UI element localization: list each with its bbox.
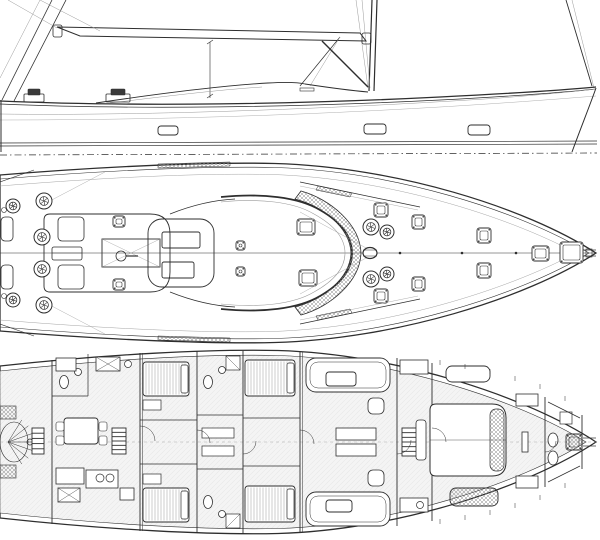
guest-pillow-b-port [287, 363, 294, 393]
mast-winch-4 [380, 267, 394, 281]
skylight-stbd-dog-0 [300, 271, 302, 273]
deck-edge [0, 89, 596, 107]
dinette-chair-4 [99, 436, 107, 445]
fore-hatch-2s-dog-1 [488, 264, 490, 266]
pantry-counter-top [400, 360, 428, 374]
fore-hatch-1s [412, 277, 425, 291]
roof-vent-port-dog-1 [242, 242, 244, 244]
skylight-stbd-dog-1 [314, 271, 316, 273]
deck-locker-port-dog-3 [122, 224, 124, 226]
traveler-fitting [300, 88, 314, 91]
winch-aft-3 [6, 293, 20, 307]
lazarette-ladder-frame [32, 428, 44, 454]
wardrobe-a-stbd [143, 474, 161, 484]
mast-hatch-stbd-dog-2 [375, 300, 377, 302]
fore-hatch-1p-dog-3 [422, 226, 424, 228]
winch-primary-stbd [34, 261, 50, 277]
skylight-stbd-dog-3 [314, 283, 316, 285]
deck-locker-stbd [113, 279, 125, 290]
companionway-steps [112, 428, 126, 454]
deck-locker-stbd-dog-0 [114, 280, 116, 282]
owner-chaise-stbd [450, 488, 498, 506]
owner-tv-cabinet [522, 432, 528, 452]
mast-hatch-port-dog-1 [385, 204, 387, 206]
mast-hatch-port-dog-3 [385, 214, 387, 216]
windlass-unit-dog-3 [579, 447, 581, 449]
windlass-unit-dog-2 [567, 447, 569, 449]
waterline [0, 153, 597, 155]
mast-hatch-port-dog-0 [375, 204, 377, 206]
saloon-armchair-stbd [368, 470, 384, 486]
deck-dot-3 [515, 252, 518, 255]
windlass-hatch-dog-3 [580, 260, 582, 262]
boot-top-upper [0, 141, 597, 143]
dinette-chair-3 [99, 422, 107, 431]
fore-hatch-3-dog-2 [533, 258, 535, 260]
roof-vent-port-dog-2 [237, 247, 239, 249]
windlass-unit-frame [566, 434, 582, 450]
mast-hatch-port-dog-2 [375, 214, 377, 216]
head-sink-stbd [219, 511, 226, 518]
owner-dresser-stbd [516, 476, 538, 488]
ga-drawing-svg [0, 0, 600, 540]
fore-hatch-2p-dog-0 [478, 229, 480, 231]
boom-vang [322, 41, 368, 87]
fore-hatch-3-dog-1 [546, 247, 548, 249]
fore-hatch-1p-dog-2 [413, 226, 415, 228]
hull-window-1 [158, 126, 178, 135]
roof-vent-stbd-dog-1 [242, 268, 244, 270]
head-sink-port [219, 367, 226, 374]
deck-locker-port-dog-0 [114, 217, 116, 219]
deck-locker-port-dog-2 [114, 224, 116, 226]
crew-berth-stbd [548, 466, 580, 482]
mast-back [374, 0, 377, 91]
deck-locker-port-dog-1 [122, 217, 124, 219]
guest-pillow-a-stbd [181, 491, 188, 519]
winch-aft-4 [36, 297, 52, 313]
dinette-chair-2 [56, 436, 64, 445]
fwd-shower [560, 412, 572, 424]
mast-hatch-stbd-dog-0 [375, 290, 377, 292]
saloon-table-stbd [326, 500, 352, 512]
deck-locker-stbd-dog-1 [122, 280, 124, 282]
skylight-stbd-dog-2 [300, 283, 302, 285]
windlass-hatch-dog-0 [561, 243, 563, 245]
windlass-unit-dog-1 [579, 435, 581, 437]
deck-plan-view [0, 162, 596, 343]
guest-pillow-b-stbd [287, 489, 294, 519]
owner-headboard [490, 409, 504, 471]
interior-plan-view [0, 350, 596, 534]
windlass-hatch-dog-1 [580, 243, 582, 245]
fore-hatch-2p-dog-2 [478, 240, 480, 242]
coaming-inner [110, 87, 262, 103]
windlass-hatch [560, 242, 583, 263]
aft-head-toilet [60, 376, 69, 389]
fore-hatch-2s-dog-0 [478, 264, 480, 266]
fore-hatch-3-dog-3 [546, 258, 548, 260]
fore-hatch-1s-dog-1 [422, 278, 424, 280]
winch-aft-1 [6, 199, 20, 213]
roof-vent-stbd-dog-3 [242, 273, 244, 275]
skylight-port-dog-1 [312, 220, 314, 222]
fore-hatch-2p [477, 228, 491, 243]
fore-hatch-3 [532, 246, 549, 261]
skylight-port-dog-3 [312, 232, 314, 234]
galley-counter-4 [86, 470, 118, 488]
fore-hatch-2s [477, 263, 491, 278]
skylight-port-dog-2 [298, 232, 300, 234]
fwd-head-sink [548, 451, 558, 465]
head-toilet-port [204, 376, 213, 389]
saloon-cabinet-2 [336, 444, 376, 456]
skylight-port-dog-0 [298, 220, 300, 222]
fore-hatch-3-frame [532, 246, 549, 261]
roof-vent-stbd [236, 267, 245, 276]
stern-winch-drum [28, 89, 40, 95]
owner-dresser-port [516, 394, 538, 406]
fore-hatch-3-dog-0 [533, 247, 535, 249]
boom [57, 27, 366, 41]
mainsheet-1 [300, 37, 340, 86]
lazarette-ladder [32, 428, 44, 454]
saloon-armchair-port [368, 398, 384, 414]
galley-counter-3 [56, 468, 84, 484]
roof-vent-port-dog-3 [242, 247, 244, 249]
deck-dot-1 [399, 252, 402, 255]
skylight-stbd [299, 270, 317, 286]
winch-primary-port [34, 229, 50, 245]
hull-window-3 [468, 125, 490, 135]
mast-front [369, 0, 372, 91]
corridor-locker-1 [202, 428, 234, 438]
fwd-head-toilet [548, 433, 558, 447]
mast-winch-2 [380, 225, 394, 239]
roof-vent-port-dog-0 [237, 242, 239, 244]
fore-hatch-2p-dog-1 [488, 229, 490, 231]
mast-hatch-stbd [374, 289, 388, 303]
fore-hatch-2s-dog-3 [488, 275, 490, 277]
profile-view [0, 0, 597, 155]
windlass-hatch-dog-2 [561, 260, 563, 262]
sheer-line [0, 87, 596, 104]
fore-hatch-1s-dog-0 [413, 278, 415, 280]
hull-shadow-line [0, 96, 596, 120]
head-toilet-stbd [204, 496, 213, 509]
fore-hatch-1p-dog-0 [413, 216, 415, 218]
forestay [566, 0, 592, 86]
mast-hatch-port [374, 203, 388, 217]
fore-hatch-1p [412, 215, 425, 229]
saloon-cabinet-1 [336, 428, 376, 440]
skylight-port [297, 219, 315, 235]
lazyjack-2 [40, 0, 100, 31]
galley-sink-top [125, 361, 132, 368]
fore-hatch-1s-dog-3 [422, 288, 424, 290]
roof-vent-port [236, 241, 245, 250]
mast-hatch-stbd-dog-1 [385, 290, 387, 292]
deck-dot-2 [461, 252, 464, 255]
hull-window-2 [364, 124, 386, 134]
windlass-unit-dog-0 [567, 435, 569, 437]
lazarette-gear-port [0, 406, 16, 419]
deck-locker-stbd-dog-3 [122, 287, 124, 289]
deck-locker-port [113, 216, 125, 227]
mast-hatch-stbd-dog-3 [385, 300, 387, 302]
backstay-1 [2, 0, 52, 100]
corridor-locker-2 [202, 446, 234, 456]
roof-vent-stbd-dog-0 [237, 268, 239, 270]
guest-pillow-a-port [181, 365, 188, 393]
inner-forestay [572, 0, 594, 88]
backstay-2 [14, 0, 66, 101]
dinette-table [64, 418, 98, 444]
mast-winch-1 [363, 219, 379, 235]
owner-sofa-port [446, 366, 490, 382]
mid-winch-drum [111, 89, 125, 95]
fore-hatch-2p-dog-3 [488, 240, 490, 242]
wardrobe-a-port [143, 400, 161, 410]
fore-hatch-1p-dog-1 [422, 216, 424, 218]
owner-bed-bench [416, 420, 426, 460]
fore-hatch-2s-dog-2 [478, 275, 480, 277]
yacht-general-arrangement-drawing [0, 0, 600, 540]
galley-counter-1 [56, 358, 76, 371]
galley-fridge [120, 488, 134, 500]
mast-winch-3 [363, 271, 379, 287]
mast-section [363, 248, 377, 259]
flag-halyard [0, 0, 40, 78]
lazarette-gear-stbd [0, 465, 16, 478]
saloon-table-port [326, 372, 356, 386]
boot-top-lower [0, 144, 597, 146]
fore-hatch-1s-dog-2 [413, 288, 415, 290]
roof-vent-stbd-dog-2 [237, 273, 239, 275]
windlass-unit [566, 434, 582, 450]
deck-locker-stbd-dog-2 [114, 287, 116, 289]
winch-aft-2 [36, 193, 52, 209]
dinette-chair-1 [56, 422, 64, 431]
